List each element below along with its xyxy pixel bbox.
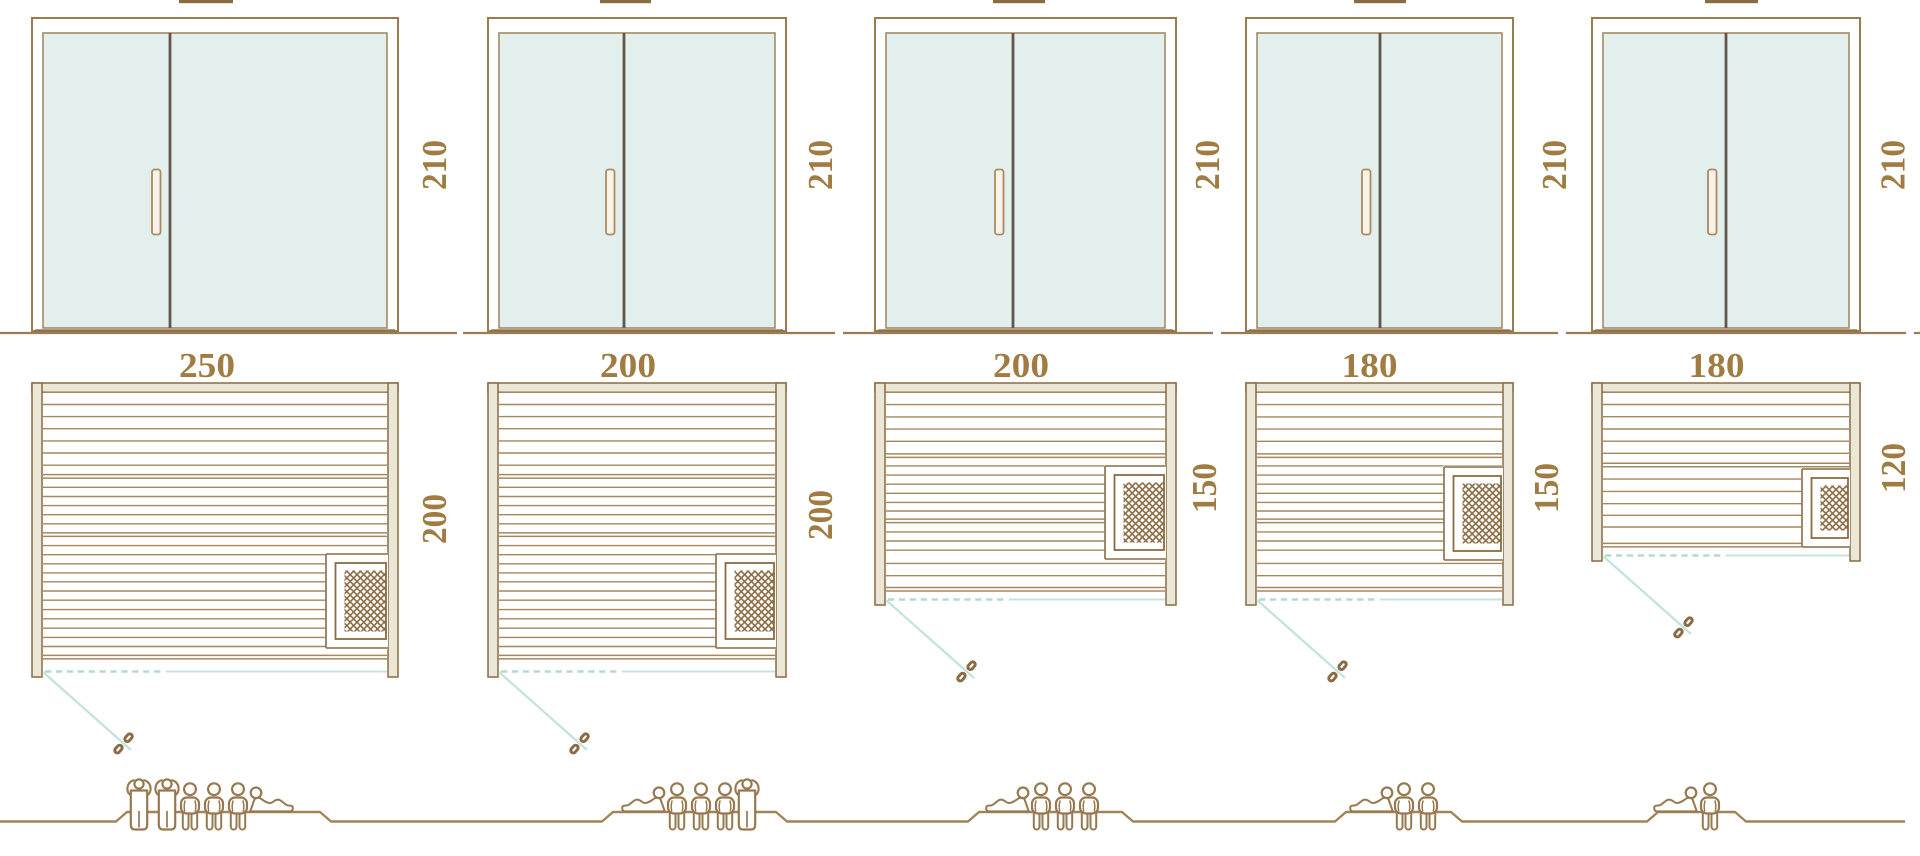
svg-text:250: 250 xyxy=(179,346,235,385)
svg-text:150: 150 xyxy=(1185,463,1224,513)
svg-text:210: 210 xyxy=(1874,140,1913,190)
svg-text:210: 210 xyxy=(801,140,840,190)
svg-text:200: 200 xyxy=(415,494,454,544)
svg-text:200: 200 xyxy=(600,346,656,385)
svg-text:200: 200 xyxy=(801,490,840,540)
svg-text:150: 150 xyxy=(1527,463,1566,513)
svg-text:180: 180 xyxy=(1342,346,1398,385)
svg-text:120: 120 xyxy=(1874,443,1913,493)
svg-text:210: 210 xyxy=(1188,140,1227,190)
svg-text:180: 180 xyxy=(1689,346,1745,385)
svg-text:200: 200 xyxy=(993,346,1049,385)
svg-text:210: 210 xyxy=(415,140,454,190)
svg-text:210: 210 xyxy=(1535,140,1574,190)
